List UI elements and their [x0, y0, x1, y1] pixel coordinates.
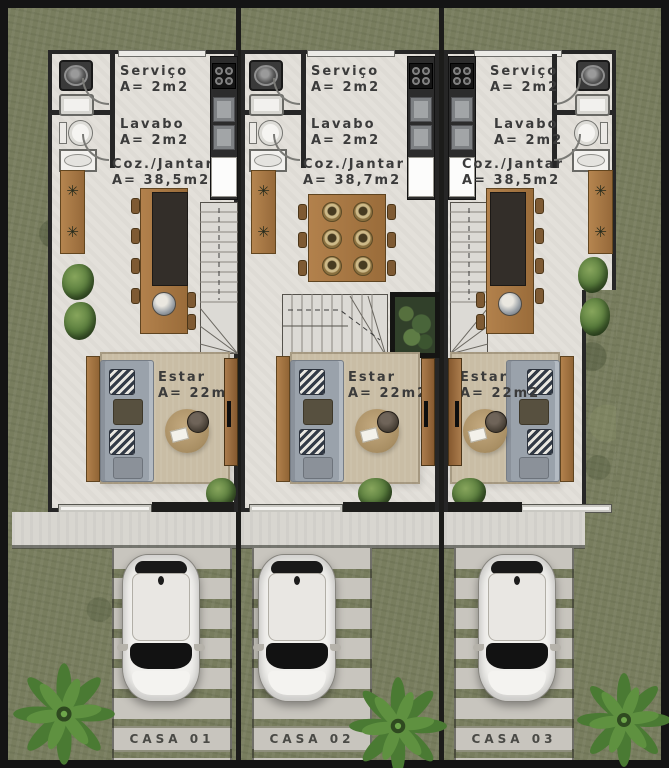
door-handle [227, 401, 231, 427]
car [258, 554, 336, 702]
planter-box [390, 292, 440, 358]
plant-star-icon: ✳ [594, 225, 607, 240]
room-name: Coz./Jantar [462, 157, 564, 173]
room-area: A= 2m2 [120, 80, 189, 96]
house-plate: CASA 01 [114, 726, 230, 752]
site-floor-plan: Serviço A= 2m2 Lavabo A= 2m2 Coz./Jantar… [0, 0, 669, 768]
house-01: Serviço A= 2m2 Lavabo A= 2m2 Coz./Jantar… [48, 50, 238, 512]
cushion [519, 399, 549, 425]
car-windshield [130, 643, 192, 669]
pillow [109, 429, 135, 455]
room-name: Serviço [311, 64, 380, 80]
car-mirror [253, 644, 264, 651]
wood-wall-panel [560, 356, 574, 482]
place-setting [322, 202, 342, 222]
dining-chair [535, 288, 544, 304]
staircase [450, 202, 488, 354]
plant-star-icon: ✳ [257, 225, 270, 240]
room-name: Estar [348, 370, 428, 386]
car-hood [132, 671, 190, 695]
dining-chair [387, 204, 396, 220]
label-lavabo: Lavabo A= 2m2 [311, 117, 380, 149]
car-mirror [117, 644, 128, 651]
dining-table [308, 194, 386, 282]
label-cozinha: Coz./Jantar A= 38,7m2 [303, 157, 405, 189]
label-lavabo: Lavabo A= 2m2 [120, 117, 189, 149]
cushion [519, 457, 549, 479]
place-setting [353, 229, 373, 249]
plant-star-icon: ✳ [66, 184, 79, 199]
table-runner [152, 192, 188, 286]
dining-chair [187, 292, 196, 308]
dining-chair [476, 292, 485, 308]
house-02: Serviço A= 2m2 Lavabo A= 2m2 Coz./Jantar… [241, 50, 439, 512]
dining-chair [298, 232, 307, 248]
centerpiece [152, 292, 176, 316]
kitchen-counter [210, 56, 238, 200]
wood-wall-panel [276, 356, 290, 482]
staircase [282, 294, 388, 358]
dining-chair [298, 204, 307, 220]
sofa [290, 360, 344, 482]
sofa [100, 360, 154, 482]
room-name: Serviço [490, 64, 559, 80]
dining-chair [476, 314, 485, 330]
label-cozinha: Coz./Jantar A= 38,5m2 [112, 157, 214, 189]
cushion [113, 399, 143, 425]
top-window [307, 50, 395, 57]
pillow [109, 369, 135, 395]
ornamental-plant [10, 660, 118, 768]
laundry-sink [59, 94, 94, 116]
car-windshield [266, 643, 328, 669]
car [122, 554, 200, 702]
kitchen-sink [451, 125, 473, 150]
ornamental-plant [574, 670, 669, 768]
refrigerator [408, 157, 434, 197]
room-area: A= 22m2 [348, 386, 428, 402]
room-name: Coz./Jantar [112, 157, 214, 173]
laundry-sink [575, 94, 610, 116]
dining-chair [387, 260, 396, 276]
shrub [578, 257, 608, 293]
label-cozinha: Coz./Jantar A= 38,5m2 [462, 157, 564, 189]
car-antenna [158, 576, 164, 585]
centerpiece [498, 292, 522, 316]
top-window [474, 50, 562, 57]
room-name: Lavabo [494, 117, 563, 133]
dining-chair [131, 258, 140, 274]
pillow [299, 429, 325, 455]
dining-chair [187, 314, 196, 330]
stove [212, 63, 236, 89]
car-antenna [294, 576, 300, 585]
room-area: A= 38,7m2 [303, 173, 405, 189]
entry-door [448, 358, 462, 466]
stove [409, 63, 433, 89]
kitchen-sink [213, 97, 235, 122]
door-handle [455, 401, 459, 427]
door-handle [424, 401, 428, 427]
room-area: A= 38,5m2 [112, 173, 214, 189]
dining-chair [298, 260, 307, 276]
top-window [118, 50, 206, 57]
place-setting [353, 256, 373, 276]
label-servico: Serviço A= 2m2 [490, 64, 559, 96]
place-setting [322, 256, 342, 276]
dining-chair [131, 198, 140, 214]
car-mirror [194, 644, 205, 651]
room-area: A= 2m2 [490, 80, 559, 96]
room-name: Serviço [120, 64, 189, 80]
table-runner [490, 192, 526, 286]
dining-chair [535, 228, 544, 244]
room-name: Estar [460, 370, 540, 386]
kitchen-sink [451, 97, 473, 122]
room-name: Lavabo [120, 117, 189, 133]
car-windshield [486, 643, 548, 669]
bathroom-sink [572, 149, 610, 172]
room-name: Lavabo [311, 117, 380, 133]
ornamental-plant [346, 674, 450, 768]
label-estar: Estar A= 22m2 [348, 370, 428, 402]
pillow [527, 429, 553, 455]
washing-machine [576, 60, 610, 91]
kitchen-sink [213, 125, 235, 150]
stove [450, 63, 474, 89]
sideboard-bench: ✳ ✳ [60, 170, 85, 254]
cushion [303, 457, 333, 479]
coffee-table [485, 411, 507, 433]
label-lavabo: Lavabo A= 2m2 [494, 117, 563, 149]
label-servico: Serviço A= 2m2 [311, 64, 380, 96]
sideboard-bench: ✳ ✳ [588, 170, 613, 254]
coffee-table [377, 411, 399, 433]
shrub [64, 302, 96, 340]
pillow [299, 369, 325, 395]
kitchen-counter [407, 56, 435, 200]
car-mirror [330, 644, 341, 651]
shrub [62, 264, 94, 300]
car-hood [488, 671, 546, 695]
label-estar: Estar A= 22m2 [460, 370, 540, 402]
car-mirror [473, 644, 484, 651]
dining-chair [535, 258, 544, 274]
plant-star-icon: ✳ [66, 225, 79, 240]
place-setting [322, 229, 342, 249]
cushion [303, 399, 333, 425]
sideboard-bench: ✳ ✳ [251, 170, 276, 254]
cushion [113, 457, 143, 479]
kitchen-sink [410, 97, 432, 122]
entry-door [421, 358, 435, 466]
dining-chair [535, 198, 544, 214]
refrigerator [211, 157, 237, 197]
room-area: A= 2m2 [311, 80, 380, 96]
room-area: A= 38,5m2 [462, 173, 564, 189]
wood-wall-panel [86, 356, 100, 482]
label-servico: Serviço A= 2m2 [120, 64, 189, 96]
room-area: A= 2m2 [120, 133, 189, 149]
entry-door [224, 358, 238, 466]
place-setting [353, 202, 373, 222]
dining-chair [387, 232, 396, 248]
plant-star-icon: ✳ [594, 184, 607, 199]
car [478, 554, 556, 702]
house-plate: CASA 03 [456, 726, 572, 752]
room-name: Coz./Jantar [303, 157, 405, 173]
plant-star-icon: ✳ [257, 184, 270, 199]
laundry-sink [249, 94, 284, 116]
patio [12, 512, 236, 548]
kitchen-sink [410, 125, 432, 150]
dining-chair [131, 228, 140, 244]
car-antenna [514, 576, 520, 585]
car-mirror [550, 644, 561, 651]
patio [444, 512, 585, 548]
room-area: A= 2m2 [494, 133, 563, 149]
car-hood [268, 671, 326, 695]
coffee-table [187, 411, 209, 433]
room-area: A= 22m2 [460, 386, 540, 402]
house-03: Serviço A= 2m2 Lavabo A= 2m2 Coz./Jantar… [444, 50, 616, 512]
patio [241, 512, 439, 548]
staircase [200, 202, 238, 354]
dining-chair [131, 288, 140, 304]
room-area: A= 2m2 [311, 133, 380, 149]
